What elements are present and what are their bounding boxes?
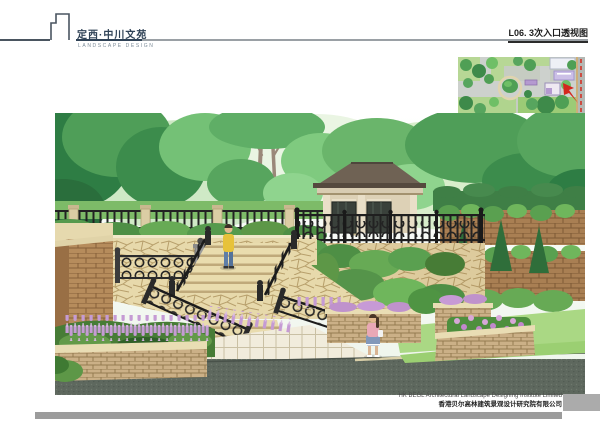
- title-underline: [76, 39, 142, 41]
- drawing-label: L06. 3次入口透视图: [508, 26, 588, 43]
- presentation-sheet: 定西·中川文苑 LANDSCAPE DESIGN L06. 3次入口透视图: [0, 0, 600, 424]
- pavilion-eave: [313, 183, 426, 188]
- footer-bar: [35, 412, 562, 419]
- site-plan-inset: [458, 57, 585, 120]
- footer-company-cn: 香港贝尔高林建筑景观设计研究院有限公司: [398, 401, 562, 409]
- main-rendering: [55, 113, 585, 395]
- right-flower-bed: [435, 315, 535, 361]
- building-logo-icon: [50, 13, 78, 42]
- plan-road: [576, 57, 585, 120]
- header-rule-left: [0, 39, 50, 41]
- footer-company-block: HK BEGL Architectural Landscape Designin…: [398, 393, 562, 409]
- page-subtitle: LANDSCAPE DESIGN: [78, 43, 154, 49]
- plan-central-plaza: [499, 77, 521, 99]
- footer-company-en: HK BEGL Architectural Landscape Designin…: [398, 393, 562, 401]
- corner-shadow-block: [563, 394, 600, 411]
